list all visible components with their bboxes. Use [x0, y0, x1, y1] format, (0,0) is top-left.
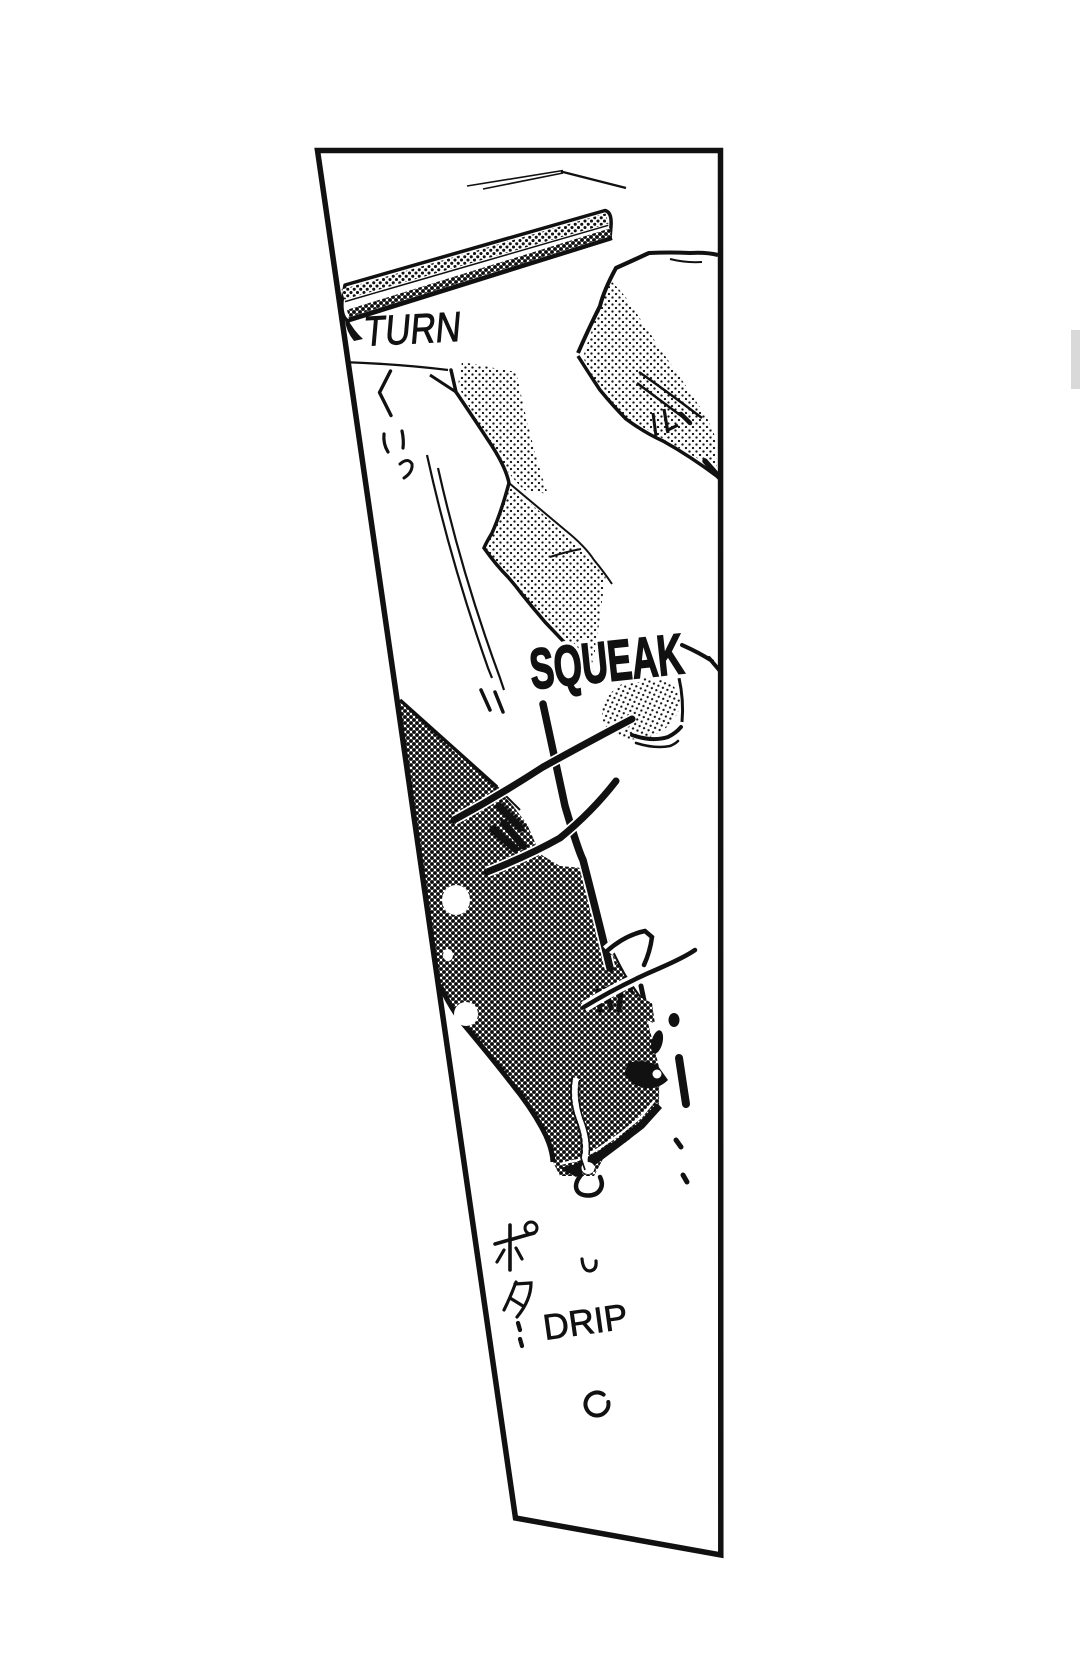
- svg-text:TURN: TURN: [362, 303, 463, 355]
